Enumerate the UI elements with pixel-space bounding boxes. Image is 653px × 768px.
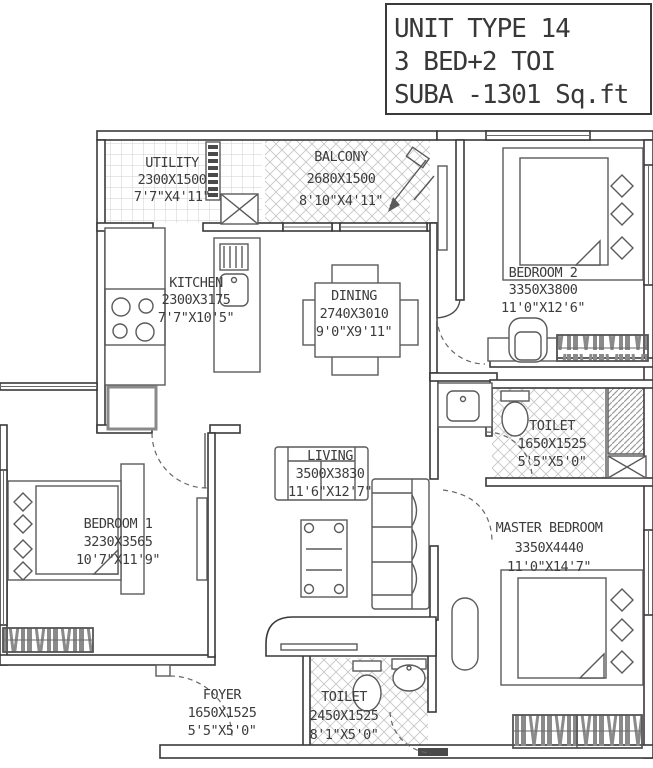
title-line-1: UNIT TYPE 14 — [394, 14, 570, 44]
title-line-2: 3 BED+2 TOI — [394, 47, 555, 77]
kitchen-fittings — [105, 228, 260, 429]
wall-kitchen-bottom-b — [210, 425, 240, 433]
wall-left-upper — [97, 140, 105, 432]
master-mm: 3350X4440 — [515, 540, 584, 556]
wall-bedroom2-west — [456, 140, 464, 300]
master-chair — [452, 598, 478, 670]
label-bedroom2: BEDROOM 2 3350X3800 11'0"X12'6" — [501, 265, 585, 316]
wall-bedroom2-curve — [437, 300, 460, 318]
label-utility: UTILITY 2300X1500 7'7"X4'11" — [134, 155, 210, 205]
label-kitchen: KITCHEN 2300X3175 7'7"X10'5" — [158, 275, 234, 326]
wall-bedroom1-bottom — [0, 655, 215, 665]
utility-ft: 7'7"X4'11" — [134, 189, 210, 205]
master-ft: 11'0"X14'7" — [507, 559, 591, 575]
bedroom2-door-swing — [437, 318, 485, 364]
label-master: MASTER BEDROOM 3350X4440 11'0"X14'7" — [496, 520, 603, 575]
bedroom2-door-leaf — [438, 166, 447, 250]
wall-corridor-top — [430, 373, 497, 381]
foyer-name: FOYER — [203, 687, 243, 703]
living-mm: 3500X3830 — [296, 466, 365, 482]
toilet1-wc-tank — [501, 391, 529, 401]
kitchen-ft: 7'7"X10'5" — [158, 310, 234, 326]
bedroom2-mm: 3350X3800 — [509, 282, 578, 298]
toilet1-mm: 1650X1525 — [518, 436, 587, 452]
bedroom2-name: BEDROOM 2 — [509, 265, 578, 281]
bedroom2-furniture — [438, 148, 648, 362]
toilet1-wc-bowl — [502, 402, 528, 436]
master-name: MASTER BEDROOM — [496, 520, 603, 536]
label-foyer: FOYER 1650X1525 5'5"X5'0" — [188, 687, 257, 739]
foyer-mm: 1650X1525 — [188, 705, 257, 721]
coffee-table — [301, 520, 347, 597]
master-bed-mattress — [518, 578, 606, 678]
label-bedroom1: BEDROOM 1 3230X3565 10'7"X11'9" — [76, 516, 160, 568]
wall-toilet1-bottom — [486, 478, 653, 486]
toilet2-name: TOILET — [321, 689, 367, 705]
toilet2-ft: 8'1"X5'0" — [310, 727, 379, 743]
floor-plan-page: UNIT TYPE 14 3 BED+2 TOI SUBA -1301 Sq.f… — [0, 0, 653, 768]
bedroom1-name: BEDROOM 1 — [84, 516, 153, 532]
toilet2-wc-tank — [353, 661, 381, 671]
kitchen-mm: 2300X3175 — [162, 292, 231, 308]
dining-ft: 9'0"X9'11" — [316, 324, 392, 340]
toilet1-ft: 5'5"X5'0" — [518, 454, 587, 470]
bedroom1-ft: 10'7"X11'9" — [76, 552, 160, 568]
wall-living-east-upper — [430, 373, 438, 479]
dining-name: DINING — [331, 288, 377, 304]
wall-living-east-lower — [430, 546, 438, 620]
bedroom1-door-swing — [152, 433, 207, 488]
fridge — [108, 387, 156, 429]
shoe-ledge — [281, 644, 357, 650]
title-block: UNIT TYPE 14 3 BED+2 TOI SUBA -1301 Sq.f… — [386, 4, 651, 114]
bedroom1-dresser — [197, 498, 207, 580]
utility-mm: 2300X1500 — [138, 172, 207, 188]
master-door-swing — [443, 490, 492, 540]
toilet2-mm: 2450X1525 — [310, 708, 379, 724]
kitchen-counter-left — [105, 228, 165, 385]
wall-dining-east — [430, 223, 437, 380]
sofa-three-seat — [372, 479, 429, 609]
wall-toilet1-top — [490, 380, 653, 388]
dining-mm: 2740X3010 — [320, 306, 389, 322]
floor-plan-drawing: UNIT TYPE 14 3 BED+2 TOI SUBA -1301 Sq.f… — [0, 0, 653, 768]
bedroom2-ft: 11'0"X12'6" — [501, 300, 585, 316]
bedroom1-mm: 3230X3565 — [84, 534, 153, 550]
entrance-door-jamb — [156, 665, 170, 676]
duct-shaft-hatched — [608, 388, 646, 454]
wall-bedroom1-east — [208, 433, 215, 657]
master-furniture — [452, 570, 643, 748]
utility-name: UTILITY — [145, 155, 199, 171]
living-ft: 11'6"X12'7" — [288, 484, 372, 500]
kitchen-name: KITCHEN — [169, 275, 223, 291]
living-name: LIVING — [307, 448, 353, 464]
balcony-mm: 2680X1500 — [307, 171, 376, 187]
toilet2-basin — [393, 665, 425, 691]
wall-balcony-mullion — [332, 223, 340, 231]
toilet1-name: TOILET — [529, 418, 575, 434]
foyer-ft: 5'5"X5'0" — [188, 723, 257, 739]
balcony-name: BALCONY — [314, 149, 368, 165]
balcony-ft: 8'10"X4'11" — [299, 193, 383, 209]
title-line-3: SUBA -1301 Sq.ft — [394, 80, 628, 110]
wall-top-left — [97, 131, 437, 140]
